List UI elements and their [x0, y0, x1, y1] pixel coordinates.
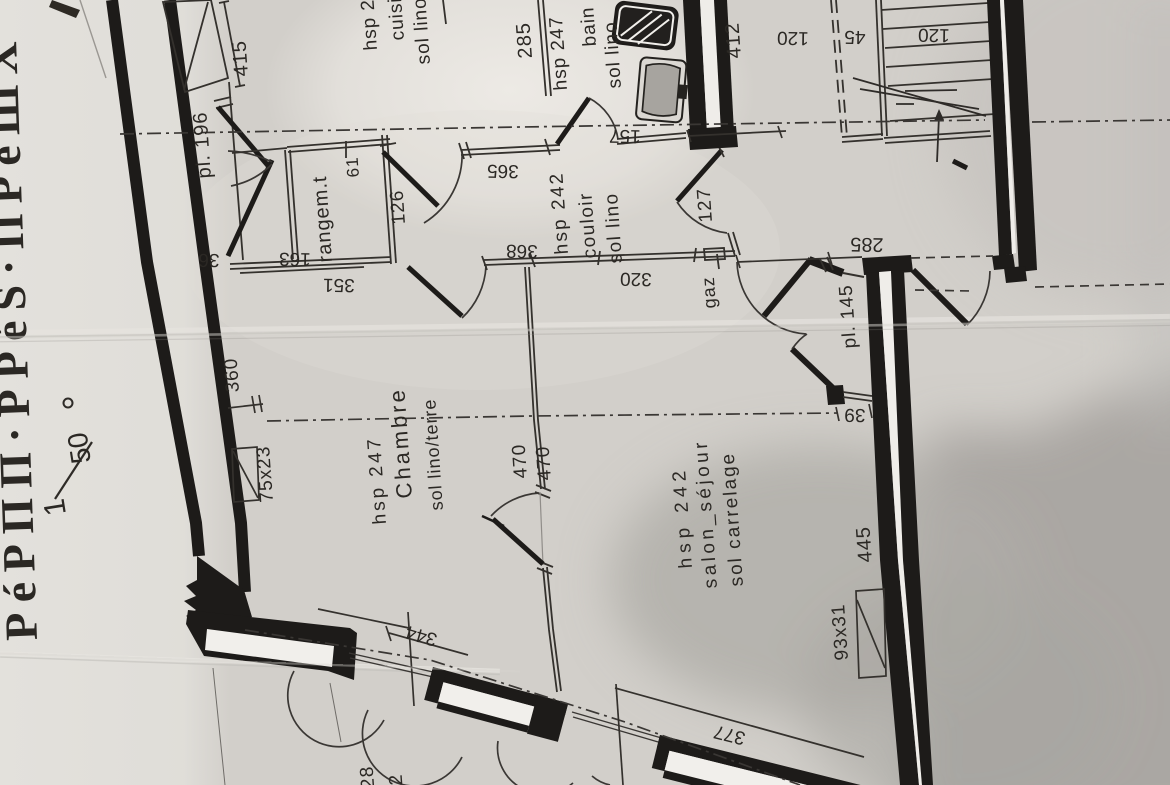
svg-text:sol lino: sol lino: [409, 0, 435, 65]
svg-text:36: 36: [198, 249, 220, 270]
svg-text:365: 365: [487, 160, 519, 182]
svg-text:75x23: 75x23: [253, 445, 278, 503]
svg-text:cuisine: cuisine: [383, 0, 409, 41]
svg-text:322: 322: [386, 773, 409, 785]
svg-text:120: 120: [777, 27, 809, 49]
svg-text:351: 351: [323, 274, 355, 296]
svg-text:45: 45: [844, 26, 866, 47]
svg-text:hsp 24: hsp 24: [357, 0, 382, 51]
svg-text:285: 285: [850, 233, 884, 256]
svg-text:39: 39: [844, 404, 866, 425]
svg-text:61: 61: [343, 156, 363, 178]
svg-text:368: 368: [506, 240, 538, 262]
svg-text:163: 163: [279, 248, 311, 270]
svg-text:320: 320: [620, 268, 652, 290]
svg-text:470: 470: [533, 445, 556, 481]
svg-text:415: 415: [229, 39, 253, 77]
svg-text:50: 50: [61, 430, 96, 466]
svg-text:126: 126: [387, 189, 410, 225]
svg-text:pl. 196: pl. 196: [189, 111, 216, 179]
svg-text:93x31: 93x31: [828, 603, 853, 661]
svg-text:bain: bain: [577, 6, 601, 47]
svg-text:128: 128: [357, 765, 380, 785]
svg-text:412: 412: [722, 21, 746, 59]
svg-text:157: 157: [609, 125, 641, 147]
svg-text:285: 285: [513, 21, 537, 59]
svg-text:pl. 145: pl. 145: [836, 284, 861, 349]
svg-text:127: 127: [694, 187, 717, 223]
svg-text:120: 120: [918, 24, 950, 46]
svg-text:445: 445: [853, 525, 877, 563]
svg-text:470: 470: [509, 443, 532, 479]
svg-text:360: 360: [221, 357, 244, 393]
svg-text:gaz: gaz: [698, 276, 720, 309]
